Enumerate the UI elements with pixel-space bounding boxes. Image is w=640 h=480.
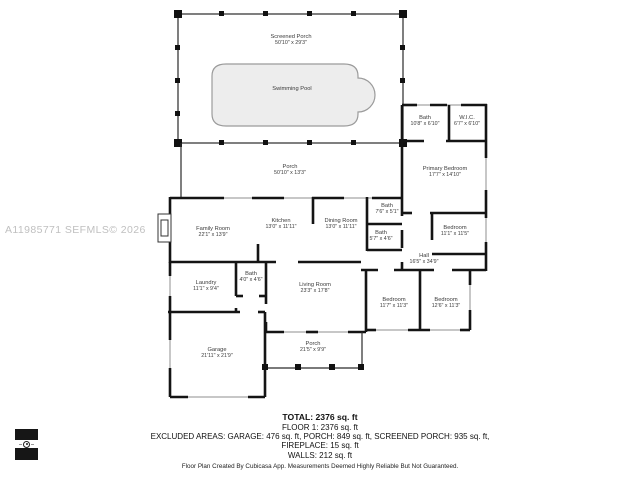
- room-label-bedroom-mid: Bedroom 11'1" x 11'5": [441, 224, 469, 237]
- room-label-bedroom-c: Bedroom 12'6" x 11'3": [432, 296, 461, 309]
- summary-total: TOTAL: 2376 sq. ft: [0, 413, 640, 423]
- room-label-bath-c: Bath 5'7" x 4'6": [369, 229, 392, 242]
- compass-icon: [15, 440, 38, 448]
- room-label-wic: W.I.C. 6'7" x 6'10": [454, 114, 480, 127]
- room-label-hall: Hall 16'5" x 34'9": [410, 252, 439, 265]
- room-label-swimming-pool: Swimming Pool: [272, 86, 311, 93]
- room-label-porch-bottom: Porch 21'5" x 9'9": [300, 340, 326, 353]
- room-label-porch-top: Porch 50'10" x 13'3": [274, 163, 306, 176]
- swimming-pool-shape: [212, 64, 375, 126]
- room-label-primary-bedroom: Primary Bedroom 17'7" x 14'10": [423, 165, 468, 178]
- room-label-garage: Garage 21'11" x 21'9": [201, 346, 233, 359]
- summary-walls: WALLS: 212 sq. ft: [0, 451, 640, 460]
- room-label-bath-a: Bath 10'8" x 6'10": [411, 114, 440, 127]
- area-summary: TOTAL: 2376 sq. ft FLOOR 1: 2376 sq. ft …: [0, 413, 640, 470]
- photo-provider-badge: [15, 429, 38, 460]
- mls-watermark: A11985771 SEFMLS© 2026: [5, 224, 146, 236]
- room-label-family-room: Family Room 22'1" x 13'9": [196, 225, 230, 238]
- room-label-bedroom-b: Bedroom 11'7" x 11'3": [380, 296, 408, 309]
- floorplan-drawing: [0, 0, 640, 480]
- room-label-kitchen: Kitchen 13'0" x 11'11": [265, 217, 296, 230]
- room-label-bath-b: Bath 7'6" x 5'1": [375, 202, 398, 215]
- room-label-laundry: Laundry 11'1" x 9'4": [193, 279, 219, 292]
- room-label-bath-d: Bath 4'0" x 4'6": [239, 270, 262, 283]
- badge-top-block: [15, 429, 38, 440]
- floorplan-page: Screened Porch 50'10" x 29'3" Swimming P…: [0, 0, 640, 480]
- room-label-dining-room: Dining Room 13'0" x 11'11": [324, 217, 357, 230]
- room-label-screened-porch: Screened Porch 50'10" x 29'3": [270, 33, 311, 46]
- summary-disclaimer: Floor Plan Created By Cubicasa App. Meas…: [0, 463, 640, 470]
- summary-floor: FLOOR 1: 2376 sq. ft: [0, 423, 640, 432]
- summary-excluded: EXCLUDED AREAS: GARAGE: 476 sq. ft, PORC…: [0, 432, 640, 441]
- badge-bottom-block: [15, 448, 38, 460]
- room-label-living-room: Living Room 23'3" x 17'8": [299, 281, 331, 294]
- summary-fireplace: FIREPLACE: 15 sq. ft: [0, 441, 640, 450]
